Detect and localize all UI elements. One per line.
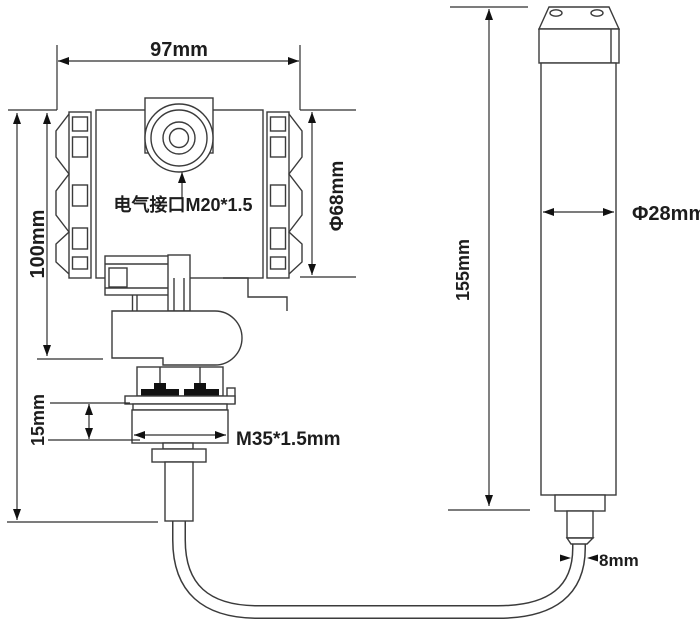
cap-rib [271,257,286,269]
collar [152,449,206,462]
cap-rib [73,137,88,157]
probe-cap-top-face [539,7,619,29]
dim-housing-diameter: Φ68mm [300,112,356,277]
seal-bar [184,389,219,396]
cable-dim-arrow-right [587,555,598,562]
cap-hole [550,10,562,16]
thread-nut-m35 [132,410,228,443]
cap-rib [73,257,88,269]
seal-nub [154,383,166,389]
dim-label-housing-diameter: Φ68mm [327,161,348,232]
housing-left-cap [56,112,91,278]
cap-hole [591,10,603,16]
cap-rib [73,228,88,249]
seal-bar [141,389,179,396]
cable-gland-stem [165,462,193,521]
cap-rib [271,117,286,131]
yoke-body [112,311,242,365]
probe-step-1 [555,495,605,511]
dim-label-housing-height: 100mm [27,210,49,279]
probe-step-2 [567,511,593,538]
transmitter-head-view [56,98,302,521]
dim-label-thread-spec: M35*1.5mm [236,429,341,450]
bracket-block [109,268,127,287]
process-connection [125,367,235,521]
right-cap-serration [289,114,302,274]
probe-body [541,63,616,495]
cable-dim-arrow-left [560,555,571,562]
probe-cap [539,29,619,63]
cap-rib [73,185,88,206]
probe-cable-taper [567,538,593,544]
cable-body [179,521,579,612]
cap-rib [271,137,286,157]
cap-rib [271,228,286,249]
center-post [168,255,190,311]
dim-label-housing-width: 97mm [150,39,208,61]
dim-ext-lines [48,403,140,440]
dim-probe-length: 155mm [448,7,530,510]
seal-nub [194,383,206,389]
cable-outline [179,521,579,612]
neck-ring [163,443,193,449]
housing-right-cap [267,112,302,278]
conduit-entry-circles [145,104,213,172]
right-step-profile [223,278,287,311]
dim-thread-height: 15mm [28,394,140,446]
dim-label-thread-height: 15mm [28,394,48,446]
conduit-circle-inner [170,129,189,148]
left-cap-serration [56,114,69,274]
spacer-ring [133,404,227,410]
level-transmitter-dimension-diagram: 97mm 100mm Φ68mm 电气接口M20*1.5 15mm M35*1.… [0,0,700,629]
callout-label-electrical-interface: 电气接口M20*1.5 [113,194,252,215]
bracket-feet [133,295,138,311]
dim-label-probe-diameter: Φ28mm [632,203,700,225]
dimension-drawing-page: 97mm 100mm Φ68mm 电气接口M20*1.5 15mm M35*1.… [0,0,700,629]
dim-label-cable-diameter: 8mm [599,551,639,570]
cap-rib [73,117,88,131]
cap-rib [271,185,286,206]
dim-label-probe-length: 155mm [453,239,473,301]
flange-plate [125,396,235,404]
probe-view [539,7,619,544]
connection-cable [179,521,579,612]
